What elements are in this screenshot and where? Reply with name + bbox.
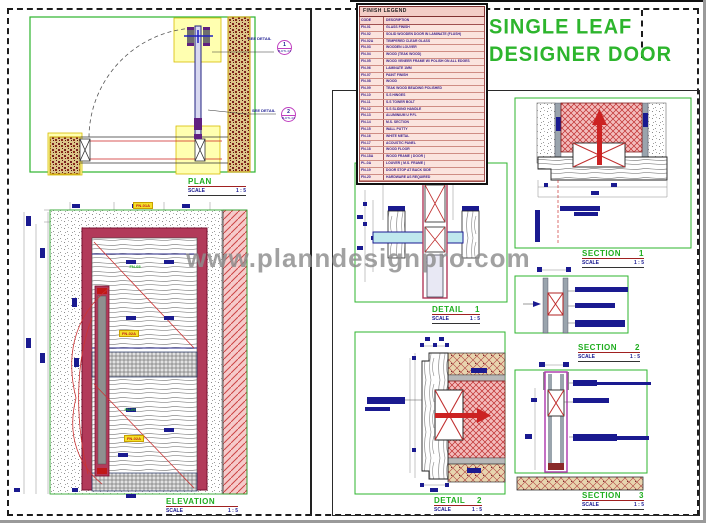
section1-scale-label: SCALE <box>582 260 599 266</box>
legend-row-desc: M.S. SECTION <box>384 120 484 126</box>
legend-row-code: FN-20 <box>360 175 384 181</box>
plan-leaf-foot <box>194 134 202 139</box>
legend-row: FN-07PAINT FINISH <box>360 73 484 80</box>
legend-row-desc: WOODEN LOUVER <box>384 45 484 51</box>
detail2-label: DETAIL 2 SCALE 1 : 5 <box>434 496 482 515</box>
section3-x-block <box>548 390 564 416</box>
section3-label: SECTION 3 SCALE 1 : 5 <box>582 491 644 510</box>
legend-row: FN-03WOODEN LOUVER <box>360 45 484 52</box>
plan-jamb-x-left <box>80 139 90 161</box>
section3-leaf-face-right <box>560 374 564 470</box>
section1-drawing <box>511 95 697 267</box>
plan-see-detail-1: SEE DETAIL <box>248 36 271 41</box>
plan-callout-2: 2 B-DTL.01 <box>280 107 297 122</box>
plan-callout-1: 1 B-DTL.01 <box>276 40 293 55</box>
section2-x-block <box>548 293 563 315</box>
legend-row-desc: WOOD FLOOR <box>384 147 484 153</box>
elevation-tag-1: FN-01A <box>126 204 160 208</box>
detail2-label-text: DETAIL <box>434 496 465 505</box>
plan-lock-block <box>194 118 202 130</box>
detail2-scale-label: SCALE <box>434 507 451 513</box>
legend-title: FINISH LEGEND <box>359 6 485 17</box>
legend-row-desc: LAMINATE 1MM <box>384 66 484 72</box>
detail2-scale-value: 1 : 5 <box>472 507 482 513</box>
section1-label-text: SECTION <box>582 249 621 258</box>
legend-row: FN-16WHITE METAL <box>360 134 484 141</box>
plan-wall-right <box>228 17 250 172</box>
legend-row: FN-12S.S SLIDING HANDLE <box>360 107 484 114</box>
detail2-left-leader-bar <box>367 397 405 404</box>
section1-label-num: 1 <box>639 249 644 258</box>
legend-row: FN-18AWOOD FRAME ( DOOR ) <box>360 154 484 161</box>
section1-dim-lines <box>538 180 667 197</box>
legend-row: FN-17ACOUSTIC PANEL <box>360 141 484 148</box>
legend-row-code: FN-07 <box>360 73 384 79</box>
legend-row-code: FN-01 <box>360 25 384 31</box>
legend-row: FN-06LAMINATE 1MM <box>360 66 484 73</box>
section1-plaster-left <box>537 103 555 163</box>
legend-row-desc: WHITE METAL <box>384 134 484 140</box>
section2-drawing <box>513 266 643 344</box>
sheet-title: SINGLE LEAF DESIGNER DOOR <box>489 14 699 69</box>
legend-row-code: FN-17 <box>360 141 384 147</box>
section2-label-text: SECTION <box>578 343 617 352</box>
section1-frame-strip-right <box>642 103 648 163</box>
section1-frame-strip-left <box>555 103 561 163</box>
legend-row: FN-02SOLID WOODEN DOOR IN LAMINATE (FLUS… <box>360 32 484 39</box>
legend-row-code: FN-09 <box>360 86 384 92</box>
elevation-scale-value: 1 : 5 <box>228 508 238 514</box>
legend-rows: FN-01GLASS FINISHFN-02SOLID WOODEN DOOR … <box>359 25 485 182</box>
section1-scale-value: 1 : 5 <box>634 260 644 266</box>
legend-row-desc: WOOD FRAME ( DOOR ) <box>384 154 484 160</box>
legend-row-code: FN-13 <box>360 113 384 119</box>
section3-scale-value: 1 : 5 <box>634 502 644 508</box>
legend-row-code: FN-02 <box>360 32 384 38</box>
legend-row-desc: HARDWARE AS REQUIRED <box>384 175 484 181</box>
section2-leaf-face-right <box>563 278 568 333</box>
section2-scale-value: 1 : 5 <box>630 354 640 360</box>
legend-row-desc: WOOD (TEAK WOOD) <box>384 52 484 58</box>
legend-row-code: FN-12 <box>360 107 384 113</box>
legend-row: FN-10S.S HINGES <box>360 93 484 100</box>
legend-row-desc: S.S SLIDING HANDLE <box>384 107 484 113</box>
plan-label-text: PLAN <box>188 177 212 186</box>
legend-row: FN-15WALL PUTTY <box>360 127 484 134</box>
detail1-scale-label: SCALE <box>432 316 449 322</box>
section3-label-text: SECTION <box>582 491 621 500</box>
legend-row: FN-05WOOD VENEER FRAME W/ POLISH ON ALL … <box>360 59 484 66</box>
legend-row-code: FN-15 <box>360 127 384 133</box>
detail1-right-cap <box>462 206 479 211</box>
detail1-x-block-1 <box>425 185 445 222</box>
detail1-label-text: DETAIL <box>432 305 463 314</box>
detail2-label-num: 2 <box>477 496 482 505</box>
sheet-title-line1: SINGLE LEAF <box>489 14 699 41</box>
legend-row: FN-13ALUMINIUM U P.FL <box>360 113 484 120</box>
elevation-handle-bar <box>98 296 106 464</box>
detail1-cyan-bar-right <box>447 232 463 243</box>
plan-wall-left-block <box>50 137 80 174</box>
legend-row-desc: S.S TOWER BOLT <box>384 100 484 106</box>
section1-label: SECTION 1 SCALE 1 : 5 <box>582 249 644 268</box>
legend-row-code: FN-14 <box>360 120 384 126</box>
elevation-label-text: ELEVATION <box>166 497 215 506</box>
legend-row: FN-18WOOD FLOOR <box>360 147 484 154</box>
legend-row-desc: WALL PUTTY <box>384 127 484 133</box>
legend-row-code: FN-05 <box>360 59 384 65</box>
section3-label-num: 3 <box>639 491 644 500</box>
callout-1-ref: B-DTL.01 <box>278 49 291 53</box>
detail1-left-cap <box>388 206 405 211</box>
legend-col-desc: DESCRIPTION <box>384 17 484 24</box>
detail2-wall-top-strip <box>448 375 505 381</box>
legend-row-desc: WOOD VENEER FRAME W/ POLISH ON ALL EDGES <box>384 59 484 65</box>
section1-plaster-right <box>648 103 666 163</box>
legend-header: CODE DESCRIPTION <box>359 17 485 25</box>
detail1-scale-value: 1 : 5 <box>470 316 480 322</box>
section2-tick-right <box>566 267 571 272</box>
legend-row: FN-04WOOD (TEAK WOOD) <box>360 52 484 59</box>
section2-leaf-face-left <box>543 278 548 333</box>
detail2-wall-text-bottom <box>467 468 481 473</box>
legend-col-code: CODE <box>360 17 384 24</box>
detail2-wall-text-top <box>471 368 487 373</box>
section2-leaders <box>568 287 628 327</box>
section3-scale-label: SCALE <box>582 502 599 508</box>
elevation-handle-bottom <box>97 468 107 474</box>
plan-scale-value: 1 : 5 <box>236 188 246 194</box>
section2-left-arrow <box>533 301 541 307</box>
detail1-cyan-bar-left <box>373 232 423 243</box>
detail2-drawing <box>353 328 511 498</box>
legend-row: FN-20HARDWARE AS REQUIRED <box>360 175 484 182</box>
legend-row-desc: DOOR STOP AT BACK SIDE <box>384 168 484 174</box>
legend-row-code: FN-02A <box>360 39 384 45</box>
legend-row: FN-14M.S. SECTION <box>360 120 484 127</box>
section2-label: SECTION 2 SCALE 1 : 5 <box>578 343 640 362</box>
legend-row-code: FN-16 <box>360 134 384 140</box>
legend-row-code: PL-0A <box>360 161 384 167</box>
legend-row-code: FN-18A <box>360 154 384 160</box>
legend-row-code: FN-19 <box>360 168 384 174</box>
legend-row: FN-01GLASS FINISH <box>360 25 484 32</box>
callout-2-ref: B-DTL.01 <box>282 116 295 120</box>
section1-blob-right <box>643 113 648 127</box>
elevation-tag-2: FN-02A <box>112 332 146 336</box>
section2-tick-left <box>537 267 542 272</box>
legend-row: FN-11S.S TOWER BOLT <box>360 100 484 107</box>
detail2-left-leader-bar2 <box>365 407 390 411</box>
legend-row-desc: SOLID WOODEN DOOR IN LAMINATE (FLUSH) <box>384 32 484 38</box>
sheet-title-line2: DESIGNER DOOR <box>489 41 699 68</box>
legend-row-code: FN-03 <box>360 45 384 51</box>
legend-row-desc: ACOUSTIC PANEL <box>384 141 484 147</box>
elevation-tag-3: FN-02A <box>117 437 151 441</box>
section3-leaf-face-left <box>548 374 552 470</box>
section1-blob-left <box>556 117 561 131</box>
detail1-label: DETAIL 1 SCALE 1 : 5 <box>432 305 480 324</box>
section3-leaf-bottom-cap <box>548 463 564 470</box>
drawing-sheet: SINGLE LEAF DESIGNER DOOR FINISH LEGEND … <box>0 0 706 523</box>
section1-annotation-bars <box>535 183 617 242</box>
legend-row-desc: WOOD <box>384 79 484 85</box>
legend-row-code: FN-06 <box>360 66 384 72</box>
legend-row-desc: ALUMINIUM U P.FL <box>384 113 484 119</box>
finish-legend-table: FINISH LEGEND CODE DESCRIPTION FN-01GLAS… <box>356 3 488 185</box>
plan-scale-label: SCALE <box>188 188 205 194</box>
watermark: www.planndesignpro.com <box>186 243 531 274</box>
sheet-top-edge <box>350 0 703 2</box>
legend-row-desc: PAINT FINISH <box>384 73 484 79</box>
legend-row-desc: GLASS FINISH <box>384 25 484 31</box>
legend-row: FN-02ATEMPERED CLEAR GLASS <box>360 39 484 46</box>
plan-see-detail-2: SEE DETAIL <box>252 108 275 113</box>
elevation-green-tag-1: FN-05 <box>120 265 150 269</box>
detail2-wall-bottom-strip <box>448 458 505 464</box>
plan-label: PLAN SCALE 1 : 5 <box>188 177 246 196</box>
elevation-label: ELEVATION SCALE 1 : 5 <box>166 497 238 516</box>
elevation-green-tag-2: FN-09 <box>115 408 145 412</box>
legend-row-code: FN-11 <box>360 100 384 106</box>
section2-scale-label: SCALE <box>578 354 595 360</box>
legend-row-code: FN-10 <box>360 93 384 99</box>
legend-row-desc: S.S HINGES <box>384 93 484 99</box>
section2-label-num: 2 <box>635 343 640 352</box>
plan-jamb-x-right <box>195 139 205 161</box>
elevation-scale-label: SCALE <box>166 508 183 514</box>
legend-row-desc: TEMPERED CLEAR GLASS <box>384 39 484 45</box>
legend-row-code: FN-08 <box>360 79 384 85</box>
legend-row-desc: LOUVER ( M.S. FRAME ) <box>384 161 484 167</box>
legend-row: PL-0ALOUVER ( M.S. FRAME ) <box>360 161 484 168</box>
legend-row: FN-19DOOR STOP AT BACK SIDE <box>360 168 484 175</box>
legend-row-code: FN-18 <box>360 147 384 153</box>
legend-row-code: FN-04 <box>360 52 384 58</box>
detail1-label-num: 1 <box>475 305 480 314</box>
section3-leaders <box>564 380 651 441</box>
legend-row: FN-09TEAK WOOD BEADING POLISHED <box>360 86 484 93</box>
legend-row: FN-08WOOD <box>360 79 484 86</box>
legend-row-desc: TEAK WOOD BEADING POLISHED <box>384 86 484 92</box>
section3-floor-band <box>517 477 643 490</box>
